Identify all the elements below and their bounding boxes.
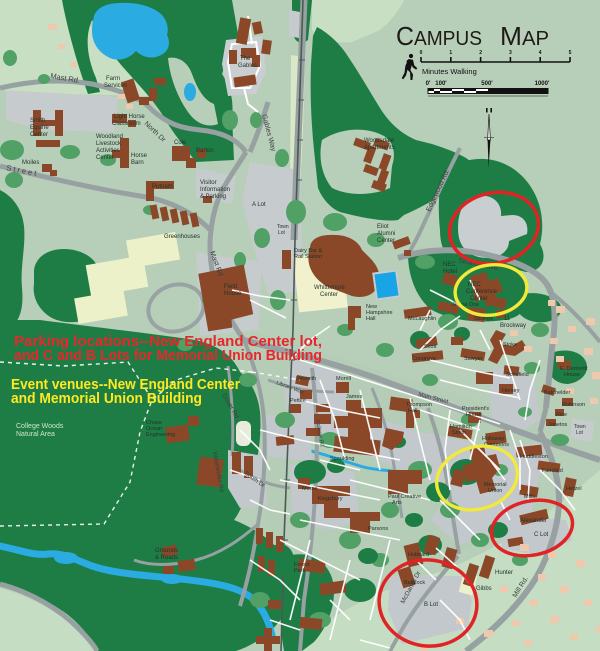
svg-text:Hetzel: Hetzel	[566, 486, 582, 492]
svg-text:Gables: Gables	[238, 63, 257, 69]
svg-text:Center: Center	[320, 292, 338, 298]
svg-text:Light Horse: Light Horse	[114, 114, 145, 120]
svg-text:Moiles: Moiles	[22, 160, 39, 166]
svg-text:Hunter: Hunter	[495, 570, 513, 576]
svg-text:and C and B Lots for Memorial: and C and B Lots for Memorial Union Buil…	[14, 348, 322, 364]
svg-text:Eliot: Eliot	[377, 224, 389, 230]
svg-text:Center: Center	[30, 132, 48, 138]
svg-text:James: James	[346, 394, 362, 400]
svg-text:Gibbs: Gibbs	[476, 586, 492, 592]
svg-text:Natural Area: Natural Area	[16, 431, 55, 438]
svg-text:House: House	[564, 372, 580, 378]
svg-text:& Roads: & Roads	[155, 555, 178, 561]
svg-text:1000': 1000'	[535, 81, 550, 87]
svg-text:Lot: Lot	[576, 430, 584, 436]
svg-text:Farm: Farm	[106, 76, 120, 82]
svg-text:Rail Station: Rail Station	[294, 254, 322, 260]
svg-text:Hotel: Hotel	[443, 269, 457, 275]
svg-text:Janetos: Janetos	[548, 422, 568, 428]
svg-text:11: 11	[504, 316, 511, 322]
svg-text:0: 0	[420, 50, 423, 56]
svg-text:Barton: Barton	[196, 148, 214, 154]
svg-text:Congreve: Congreve	[412, 356, 436, 362]
svg-text:Brockway: Brockway	[500, 323, 526, 329]
svg-text:Batchelder: Batchelder	[544, 390, 570, 396]
svg-text:Huddleston: Huddleston	[520, 454, 548, 460]
svg-text:Parsons: Parsons	[368, 526, 388, 532]
svg-text:Engineering: Engineering	[146, 432, 175, 438]
svg-text:Hall: Hall	[408, 408, 417, 414]
svg-text:3: 3	[509, 50, 512, 56]
svg-text:Babcock: Babcock	[404, 580, 425, 586]
svg-text:Visitor: Visitor	[200, 180, 217, 186]
svg-text:Information: Information	[200, 187, 230, 193]
svg-text:Stoke: Stoke	[503, 342, 517, 348]
svg-text:Pettee: Pettee	[290, 398, 306, 404]
svg-text:Spaulding: Spaulding	[330, 456, 354, 462]
svg-text:Center: Center	[96, 155, 114, 161]
svg-text:5: 5	[569, 50, 572, 56]
svg-text:2: 2	[479, 50, 482, 56]
svg-text:Hall: Hall	[366, 316, 375, 322]
svg-text:Rice: Rice	[556, 412, 567, 418]
svg-text:Activities: Activities	[96, 148, 120, 154]
svg-text:Center: Center	[377, 238, 395, 244]
svg-text:0': 0'	[426, 81, 431, 87]
svg-text:Woodsdale: Woodsdale	[364, 138, 395, 144]
svg-text:Alumni: Alumni	[377, 231, 395, 237]
svg-text:College Woods: College Woods	[16, 423, 64, 430]
svg-text:The: The	[240, 56, 251, 62]
svg-text:NEC: NEC	[443, 262, 456, 268]
svg-text:Scott: Scott	[424, 344, 437, 350]
svg-text:Lot: Lot	[278, 230, 286, 236]
svg-text:Apartments: Apartments	[364, 145, 395, 151]
svg-text:B Lot: B Lot	[424, 602, 438, 608]
svg-text:& Parking: & Parking	[200, 194, 226, 200]
svg-text:1: 1	[449, 50, 452, 56]
svg-text:Hersey: Hersey	[502, 388, 520, 394]
svg-text:Nesmith: Nesmith	[296, 376, 316, 382]
svg-text:House: House	[466, 412, 482, 418]
svg-text:Smith: Smith	[452, 430, 466, 436]
svg-text:Park: Park	[294, 568, 306, 574]
svg-text:500': 500'	[481, 81, 493, 87]
svg-text:Conference: Conference	[466, 289, 498, 295]
svg-text:Whittemore: Whittemore	[314, 285, 345, 291]
svg-text:100': 100'	[435, 81, 447, 87]
svg-text:Hubbard: Hubbard	[408, 552, 429, 558]
svg-text:House: House	[224, 291, 242, 297]
svg-text:Services: Services	[104, 83, 127, 89]
svg-text:Arts: Arts	[392, 500, 402, 506]
svg-text:Robinson: Robinson	[562, 402, 585, 408]
svg-text:4: 4	[539, 50, 542, 56]
svg-text:Minutes Walking: Minutes Walking	[422, 67, 477, 76]
svg-text:Kingsbury: Kingsbury	[318, 496, 343, 502]
svg-text:Schofield: Schofield	[506, 372, 529, 378]
svg-text:Smith: Smith	[30, 118, 45, 124]
svg-text:Cole: Cole	[174, 140, 187, 146]
svg-text:Stillings: Stillings	[474, 316, 493, 322]
svg-text:and Memorial Union Building: and Memorial Union Building	[11, 391, 202, 407]
svg-text:Field: Field	[224, 284, 237, 290]
svg-text:McLaughlin: McLaughlin	[408, 316, 436, 322]
svg-text:Barn: Barn	[131, 160, 144, 166]
svg-text:C Lot: C Lot	[534, 532, 549, 538]
svg-text:Livestock: Livestock	[96, 141, 122, 147]
svg-text:Woodland: Woodland	[96, 134, 123, 140]
svg-text:Greenhouses: Greenhouses	[164, 234, 200, 240]
svg-text:A Lot: A Lot	[252, 202, 266, 208]
svg-text:Morrill: Morrill	[336, 376, 351, 382]
svg-text:Grounds: Grounds	[155, 548, 178, 554]
svg-text:Union: Union	[488, 488, 502, 494]
svg-text:Fairchild: Fairchild	[542, 468, 563, 474]
svg-text:Equine: Equine	[30, 125, 49, 131]
svg-text:Alexander: Alexander	[520, 518, 547, 524]
svg-text:Jessie Doe: Jessie Doe	[452, 302, 479, 308]
svg-text:Putnam: Putnam	[152, 184, 173, 190]
svg-text:Horse: Horse	[131, 153, 148, 159]
svg-text:Sawyer: Sawyer	[464, 356, 483, 362]
svg-text:Morse: Morse	[302, 486, 317, 492]
svg-text:NEC: NEC	[468, 282, 481, 288]
svg-text:Classroom: Classroom	[112, 121, 141, 127]
